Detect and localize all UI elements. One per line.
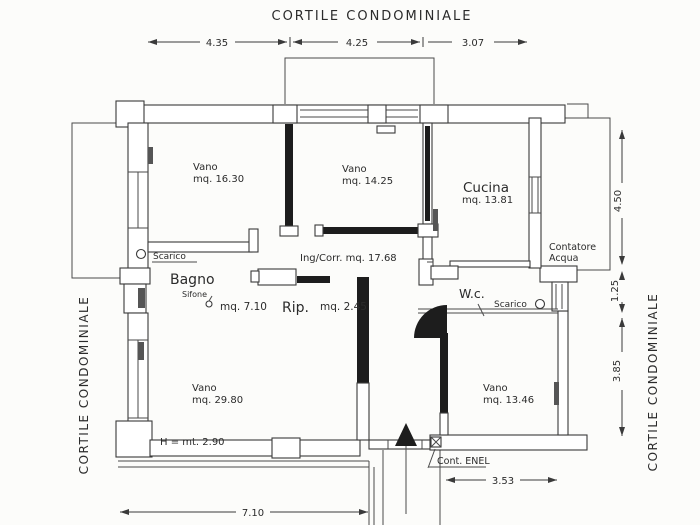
scarico-bagno-circle	[137, 250, 146, 259]
dim-right-2: 1.25	[610, 280, 621, 302]
room-bagno-area: mq. 7.10	[220, 301, 267, 313]
dim-top-3: 3.07	[462, 38, 484, 49]
scarico-wc-circle	[536, 300, 545, 309]
window-vano4	[554, 382, 559, 405]
room-vano2-area: mq. 14.25	[342, 176, 393, 187]
entrance-walkway	[118, 450, 440, 525]
sifone-label: Sifone	[182, 290, 207, 299]
dim-bottom-right: 3.53	[492, 476, 514, 487]
room-rip-area: mq. 2.45	[320, 301, 367, 313]
room-vano2-name: Vano	[342, 164, 367, 175]
room-vano1-area: mq. 16.30	[193, 174, 244, 185]
room-rip-name: Rip.	[282, 300, 309, 316]
radiator-vano3	[138, 342, 144, 360]
title-cortile-top: CORTILE CONDOMINIALE	[272, 9, 473, 24]
dim-bottom-left: 7.10	[242, 508, 264, 519]
room-ingcorr-label: Ing/Corr. mq. 17.68	[300, 253, 397, 264]
floorplan-page: CORTILE CONDOMINIALE 4.35 4.25 3.07 Vano…	[0, 0, 700, 525]
room-vano3-name: Vano	[192, 383, 217, 394]
room-wc-name: W.c.	[459, 286, 485, 301]
room-height-note: H = mt. 2.90	[160, 437, 225, 448]
scarico-wc-label: Scarico	[494, 300, 527, 310]
room-vano4-name: Vano	[483, 383, 508, 394]
room-cucina-area: mq. 13.81	[462, 195, 513, 206]
cont-enel-label: Cont. ENEL	[437, 456, 490, 467]
sifone-symbol	[206, 301, 212, 307]
room-vano1-name: Vano	[193, 162, 218, 173]
room-vano3-area: mq. 29.80	[192, 395, 243, 406]
radiator-cucina	[433, 209, 438, 231]
entrance-arrow	[395, 423, 417, 446]
dim-top-2: 4.25	[346, 38, 368, 49]
dim-right-1: 4.50	[613, 190, 624, 212]
contatore-label-line2: Acqua	[549, 253, 578, 264]
courtyard-label-left: CORTILE CONDOMINIALE	[77, 296, 91, 475]
bagno-window	[138, 288, 145, 308]
corridor-door-leaf	[431, 266, 458, 279]
rip-door-leaf	[258, 269, 296, 285]
room-cucina-name: Cucina	[463, 180, 509, 196]
room-vano4-area: mq. 13.46	[483, 395, 534, 406]
courtyard-label-right: CORTILE CONDOMINIALE	[646, 293, 660, 472]
contatore-label-line1: Contatore	[549, 242, 596, 253]
dim-top-1: 4.35	[206, 38, 228, 49]
courtyard-boundary-left	[72, 123, 126, 278]
radiator-vano1	[148, 147, 153, 164]
floorplan-drawing: CORTILE CONDOMINIALE 4.35 4.25 3.07 Vano…	[0, 0, 700, 525]
room-bagno-name: Bagno	[170, 272, 215, 288]
scarico-bagno-label: Scarico	[153, 252, 186, 262]
wc-door-arc	[414, 305, 447, 338]
dim-right-3: 3.85	[612, 360, 623, 382]
balcony-outline	[285, 58, 434, 104]
